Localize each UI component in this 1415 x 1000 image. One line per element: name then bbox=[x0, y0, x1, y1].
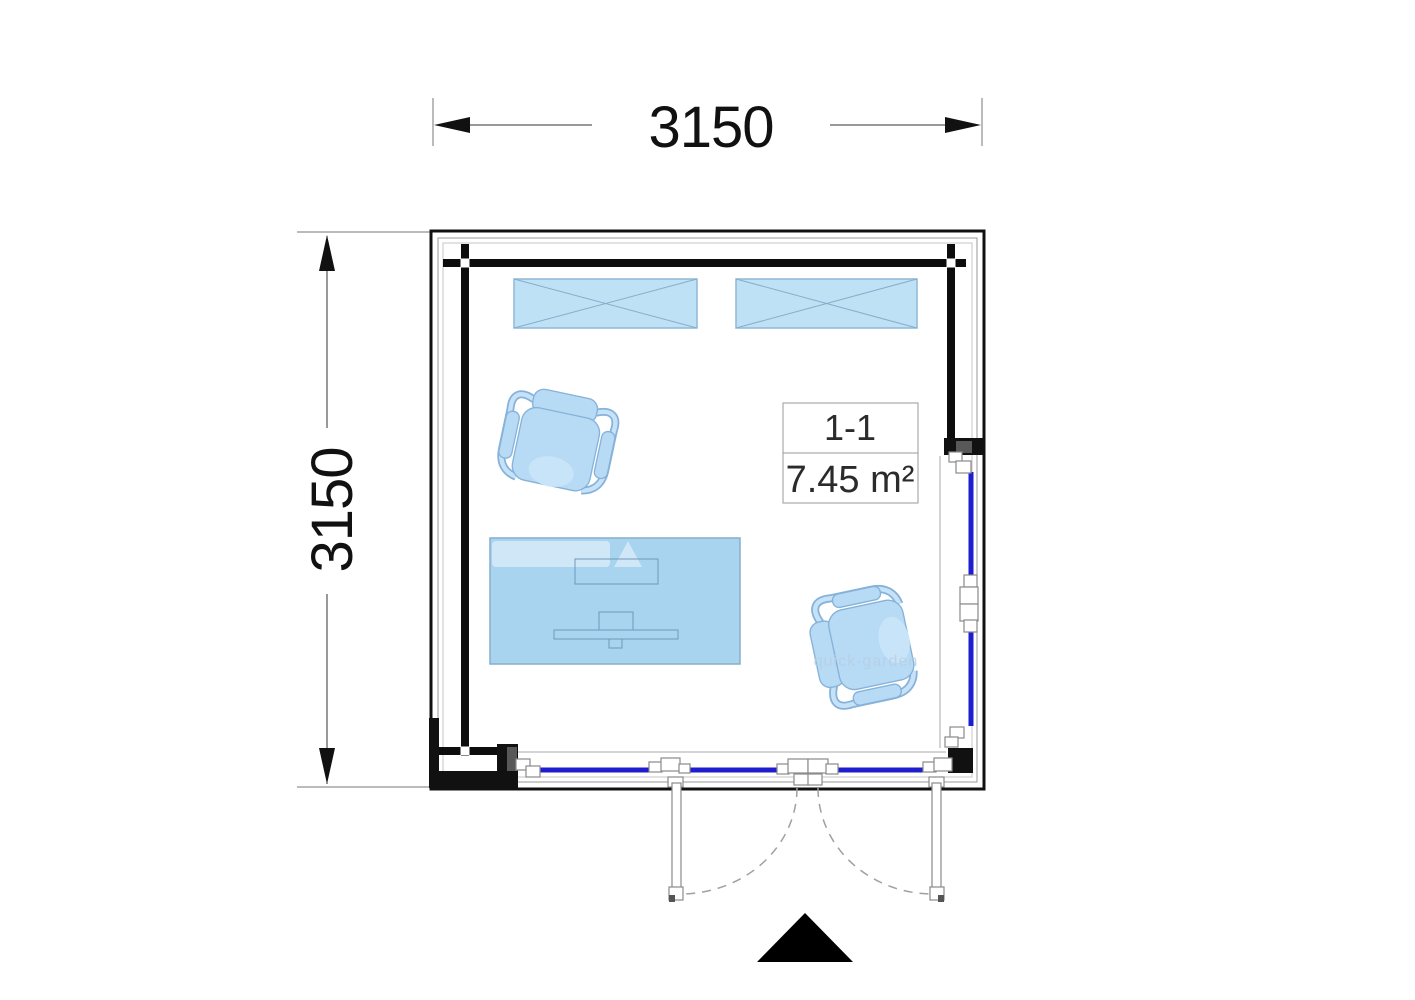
door-leaf-right bbox=[932, 783, 941, 889]
entrance-arrow-icon bbox=[757, 913, 853, 962]
door-swing-arc-left bbox=[683, 788, 797, 894]
dimension-arrow-up-icon bbox=[319, 235, 335, 271]
door-leaf-left bbox=[672, 783, 681, 889]
dimension-left: 3150 bbox=[297, 232, 433, 787]
double-door bbox=[668, 777, 944, 902]
wall-beam-top bbox=[443, 259, 966, 267]
office-chair-2 bbox=[803, 581, 921, 712]
skylight-window-2 bbox=[736, 279, 917, 328]
skylight-window-1 bbox=[514, 279, 697, 328]
corner-bottom-left bbox=[429, 771, 518, 788]
monitor-screen bbox=[554, 630, 678, 639]
dimension-left-value: 3150 bbox=[300, 447, 365, 572]
monitor-stand bbox=[609, 639, 622, 648]
wall-beam-left bbox=[461, 244, 469, 756]
dimension-arrow-left-icon bbox=[434, 117, 470, 133]
room-area: 7.45 m² bbox=[786, 459, 915, 501]
desk bbox=[490, 538, 740, 664]
dimension-arrow-down-icon bbox=[319, 748, 335, 784]
office-chair-1 bbox=[494, 383, 622, 498]
floor-plan-drawing: 3150 3150 bbox=[0, 0, 1415, 1000]
dimension-arrow-right-icon bbox=[945, 117, 981, 133]
room-number: 1-1 bbox=[824, 407, 876, 448]
watermark-text: quick-garden bbox=[814, 653, 919, 670]
wall-beam-right bbox=[947, 244, 955, 442]
wall-beam-bottom-left bbox=[438, 747, 502, 755]
floor-plan-page: 3150 3150 bbox=[0, 0, 1415, 1000]
dimension-top: 3150 bbox=[433, 95, 982, 160]
watermark-logo bbox=[492, 541, 610, 567]
room-label-box: 1-1 7.45 m² bbox=[783, 403, 918, 503]
door-swing-arc-right bbox=[818, 788, 932, 894]
dimension-top-value: 3150 bbox=[648, 95, 773, 160]
